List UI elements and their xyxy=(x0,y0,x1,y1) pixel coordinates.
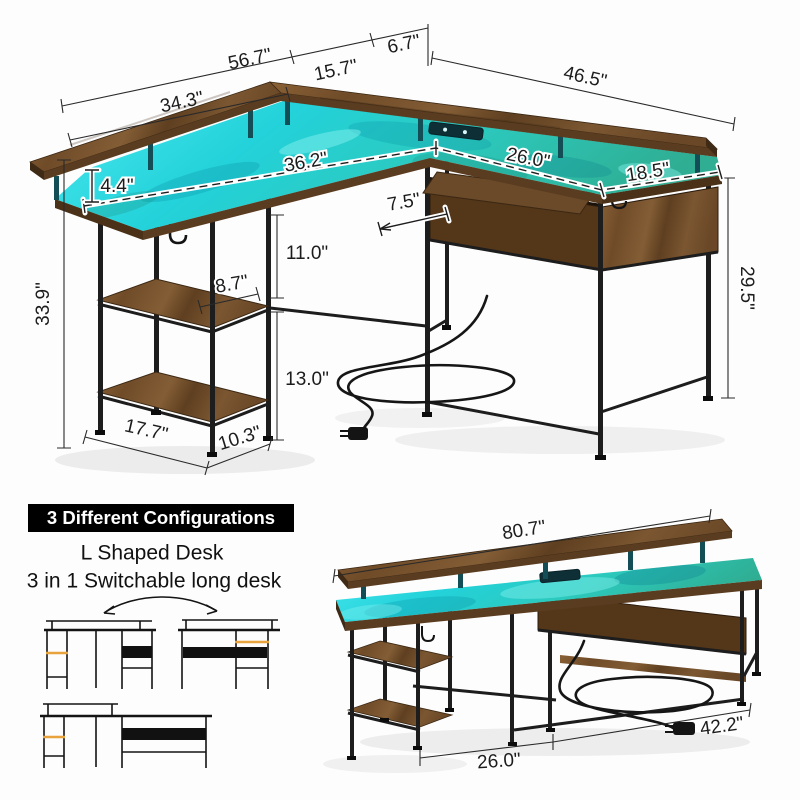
config-title-1: L Shaped Desk xyxy=(81,542,224,565)
dim-desk-height: 29.5" xyxy=(736,266,757,310)
main-desk-diagram: 56.7" 15.7" 6.7" 34.3" 46.5" 36.2" 26.0"… xyxy=(30,24,757,475)
long-desk-diagram: 80.7" 26.0" 42.2" xyxy=(323,509,762,774)
config-drawing-l-desk-right xyxy=(178,620,280,689)
switch-arrow-icon xyxy=(104,597,217,614)
dim-tray-depth: 7.5" xyxy=(386,189,422,215)
dim-upper-shelf-gap: 11.0" xyxy=(286,243,328,264)
configurations-badge-label: 3 Different Configurations xyxy=(47,507,275,528)
dim-lower-shelf-gap: 13.0" xyxy=(285,369,329,390)
product-dimension-image: 56.7" 15.7" 6.7" 34.3" 46.5" 36.2" 26.0"… xyxy=(0,0,800,800)
diagram-canvas: 56.7" 15.7" 6.7" 34.3" 46.5" 36.2" 26.0"… xyxy=(0,0,800,800)
config-drawing-l-desk-left xyxy=(44,621,156,689)
dim-shelf-depth: 8.7" xyxy=(214,271,250,297)
dim-riser-height: 4.4" xyxy=(100,176,133,197)
dim-top-total: 56.7" xyxy=(226,45,273,75)
dim-tower-width: 17.7" xyxy=(122,415,169,445)
dim-top-corner: 6.7" xyxy=(385,31,422,58)
dim-overall-height: 33.9" xyxy=(33,282,54,326)
dim-long-total: 80.7" xyxy=(501,517,547,545)
dim-long-left: 26.0" xyxy=(476,750,521,774)
config-drawing-long-desk xyxy=(40,704,212,768)
configurations-section: 3 Different Configurations L Shaped Desk… xyxy=(27,504,294,768)
config-title-2: 3 in 1 Switchable long desk xyxy=(27,570,282,593)
power-plug-icon xyxy=(340,427,368,440)
dim-top-middle: 15.7" xyxy=(312,56,359,86)
side-hook xyxy=(422,626,434,641)
